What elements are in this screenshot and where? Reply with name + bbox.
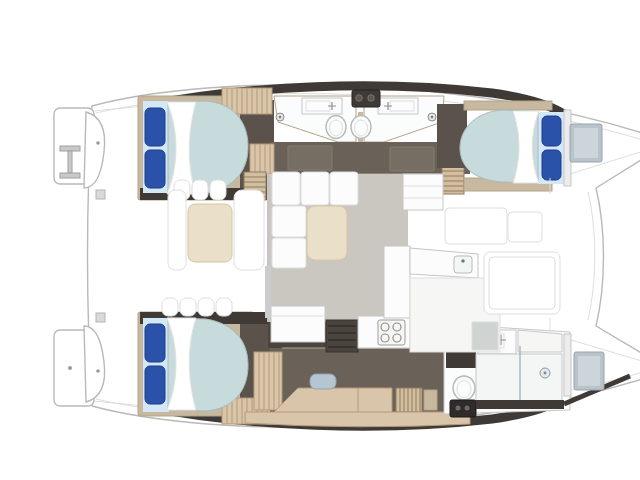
sliding-door: [265, 266, 271, 318]
companionway-steps-starboard: [326, 320, 358, 352]
sink-counter-left: [302, 98, 342, 114]
pillow: [145, 108, 165, 146]
bathroom-door: [288, 146, 332, 170]
pillow: [145, 366, 165, 404]
sofa-cushion: [272, 172, 300, 205]
sink-counter-right: [378, 98, 418, 114]
double-bed: [460, 110, 564, 184]
hullside-dark-band: [476, 400, 564, 409]
bow-hatch: [570, 124, 602, 162]
galley-counter-side: [384, 246, 410, 318]
shower-enclosure: [476, 346, 562, 408]
toilet: [453, 376, 475, 400]
cooktop: [378, 320, 405, 345]
side-cabinet: [424, 390, 437, 410]
toilet: [351, 116, 371, 139]
shelf-top: [464, 101, 552, 110]
bow-hatch: [574, 352, 604, 390]
double-bed: [143, 318, 248, 412]
washing-machine: [450, 400, 476, 417]
floorplan-canvas: [40, 16, 640, 480]
sofa-cushion: [272, 206, 306, 237]
slatted-cabinet: [396, 388, 422, 412]
sofa-cushion: [301, 172, 329, 205]
desk-chair: [310, 374, 336, 389]
cockpit-bench-left: [168, 190, 186, 270]
galley-sink: [454, 256, 472, 273]
appliance-panel: [472, 322, 498, 350]
galley-upper-cabinet: [403, 174, 443, 210]
platform-fitting-dot: [68, 366, 72, 370]
toilet: [326, 116, 346, 139]
cockpit-bench-right: [234, 190, 264, 270]
pillow: [145, 150, 165, 188]
salon-cabinet: [271, 306, 325, 342]
shower-head-icon: [428, 113, 436, 121]
sofa-cushion: [272, 238, 306, 268]
cockpit-table: [188, 204, 232, 262]
angled-shelf: [518, 330, 562, 352]
bathroom-door: [390, 147, 434, 171]
bulkhead-wall: [564, 334, 571, 396]
pillow: [542, 116, 561, 146]
deck-locker: [508, 212, 542, 242]
cleat-top: [96, 190, 105, 199]
pillow: [145, 324, 165, 362]
companionway-steps-port-fwd: [442, 166, 464, 194]
roof-hatch-dark: [352, 90, 380, 107]
catamaran-floorplan: [40, 16, 640, 480]
shower-head-icon: [276, 113, 284, 121]
cleat-bottom: [96, 313, 105, 322]
deck-locker: [445, 208, 507, 244]
deck-dot-bottom: [96, 369, 100, 373]
deck-dot-top: [96, 141, 100, 145]
lounge-pad: [484, 252, 560, 314]
ottoman-table: [307, 206, 347, 260]
pillow: [542, 150, 561, 180]
sofa-cushion: [330, 172, 358, 205]
hullside-shelf: [245, 412, 470, 427]
wood-landing: [254, 352, 282, 410]
wood-landing: [250, 144, 274, 174]
